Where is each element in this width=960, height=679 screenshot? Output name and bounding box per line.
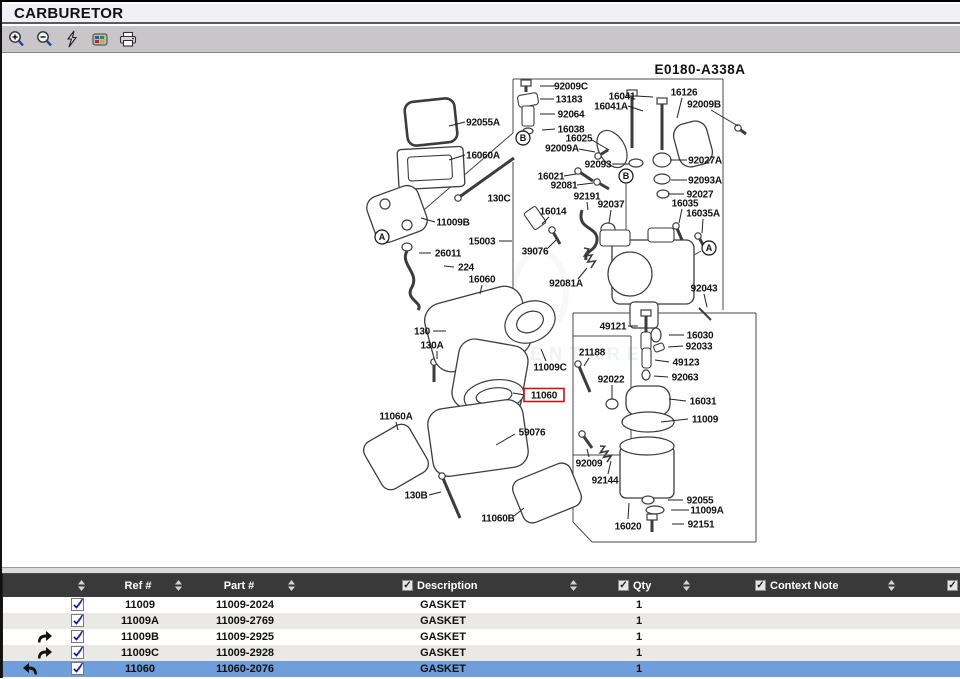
table-row-11060[interactable]: 1106011060-2076GASKET1: [3, 661, 960, 677]
cell-note: [749, 662, 849, 676]
part-label-15003[interactable]: 15003: [469, 237, 496, 248]
part-bolt-head: [657, 98, 667, 104]
zoom-in-button[interactable]: [5, 28, 27, 50]
label-leader-line: [679, 209, 682, 223]
column-checkbox-qty[interactable]: ✓: [618, 580, 629, 591]
part-label-16126[interactable]: 16126: [671, 88, 698, 99]
part-label-11009B[interactable]: 11009B: [436, 218, 469, 229]
label-leader-line: [668, 346, 683, 347]
cell-desc: GASKET: [393, 646, 493, 660]
sort-arrows-ref[interactable]: [174, 579, 183, 597]
part-label-130C[interactable]: 130C: [487, 194, 510, 205]
part-shape: [641, 332, 651, 350]
part-label-92093A[interactable]: 92093A: [688, 176, 722, 187]
column-checkbox-description[interactable]: ✓: [402, 580, 413, 591]
part-label-49123[interactable]: 49123: [673, 358, 700, 369]
label-leader-line: [711, 110, 738, 126]
cell-note: [749, 614, 849, 628]
part-label-92063[interactable]: 92063: [672, 373, 699, 384]
label-leader-line: [654, 376, 668, 377]
cell-part: 11009-2925: [190, 630, 300, 644]
print-icon: [119, 31, 138, 48]
part-label-11009C[interactable]: 11009C: [533, 363, 566, 374]
part-screw: [578, 364, 590, 392]
label-leader-line: [704, 294, 707, 307]
part-screw: [442, 476, 460, 518]
label-leader-line: [548, 240, 556, 248]
table-row-11009C[interactable]: 11009C11009-2928GASKET1: [3, 645, 960, 661]
part-label-130[interactable]: 130: [414, 327, 431, 338]
return-arrow-icon[interactable]: [21, 661, 39, 679]
cell-part: 11009-2769: [190, 614, 300, 628]
part-label-26011[interactable]: 26011: [435, 249, 462, 260]
part-shape: [642, 496, 654, 504]
table-row-11009A[interactable]: 11009A11009-2769GASKET1: [3, 613, 960, 629]
table-row-11009[interactable]: 1100911009-2024GASKET1: [3, 597, 960, 613]
label-leader-line: [579, 149, 595, 152]
part-shape: [620, 437, 674, 455]
part-label-11009A[interactable]: 11009A: [690, 506, 723, 517]
part-label-49121[interactable]: 49121: [600, 322, 627, 333]
label-leader-line: [429, 492, 441, 495]
callout-letter-B: B: [623, 171, 630, 181]
label-leader-line: [564, 174, 576, 176]
part-shape: [363, 182, 430, 246]
part-label-11060[interactable]: 11060: [531, 391, 558, 402]
part-bolt-head: [521, 80, 531, 86]
part-shape: [657, 190, 669, 198]
label-leader-line: [444, 266, 454, 267]
part-bolt-head: [641, 310, 651, 316]
part-label-92009B[interactable]: 92009B: [687, 100, 721, 111]
label-leader-line: [587, 202, 588, 210]
part-screw-head: [549, 227, 555, 233]
sort-arrows-select-column[interactable]: [77, 579, 86, 597]
cell-ref: 11009A: [100, 614, 180, 628]
part-label-92022[interactable]: 92022: [598, 375, 625, 386]
label-leader-line: [578, 268, 587, 279]
part-shape: [522, 106, 534, 126]
part-label-13183[interactable]: 13183: [556, 95, 583, 106]
sort-arrows-part[interactable]: [287, 579, 296, 597]
part-label-92081[interactable]: 92081: [551, 181, 578, 192]
part-shape: [608, 252, 652, 296]
hotspot-parts-icon: [91, 30, 109, 48]
label-leader-line: [677, 98, 682, 118]
sort-arrows-context-note[interactable]: [887, 579, 896, 597]
cell-qty: 1: [624, 646, 654, 660]
cell-part: 11060-2076: [190, 662, 300, 676]
part-hose: [581, 210, 597, 260]
part-shape: [517, 92, 539, 107]
label-leader-line: [609, 210, 611, 223]
label-leader-line: [655, 360, 669, 362]
cell-ref: 11060: [100, 662, 180, 676]
window-left-border: [0, 2, 2, 678]
diagram-code: E0180-A338A: [654, 62, 745, 77]
part-shape: [651, 328, 661, 342]
part-label-130B[interactable]: 130B: [404, 491, 427, 502]
cell-qty: 1: [624, 598, 654, 612]
part-shape: [600, 230, 630, 246]
cell-ref: 11009: [100, 598, 180, 612]
column-checkbox-extra[interactable]: ✓: [947, 580, 958, 591]
part-label-92151[interactable]: 92151: [688, 520, 715, 531]
part-screw-head: [594, 179, 600, 185]
part-shape: [653, 153, 671, 167]
part-screw-head: [673, 223, 679, 229]
cell-part: 11009-2928: [190, 646, 300, 660]
part-label-11060A[interactable]: 11060A: [379, 412, 412, 423]
diagram-area: LEADVENTURE92055A16060A130C11009B1500326…: [0, 54, 960, 567]
part-label-224[interactable]: 224: [458, 263, 475, 274]
cell-part: 11009-2024: [190, 598, 300, 612]
column-header-ref-[interactable]: Ref #: [113, 574, 163, 597]
part-label-92009[interactable]: 92009: [576, 459, 603, 470]
part-shape: [404, 98, 458, 147]
part-label-16014[interactable]: 16014: [540, 207, 567, 218]
zoom-in-icon: [7, 30, 25, 48]
part-label-16060[interactable]: 16060: [469, 275, 496, 286]
part-label-92064[interactable]: 92064: [558, 110, 585, 121]
page-title: CARBURETOR: [14, 5, 123, 22]
part-shape: [646, 506, 664, 514]
part-screw: [458, 158, 514, 198]
part-shape: [402, 220, 412, 230]
part-screw-head: [439, 473, 445, 479]
label-leader-line: [636, 96, 653, 97]
cell-desc: GASKET: [393, 598, 493, 612]
carburetor-diagram-svg: LEADVENTURE92055A16060A130C11009B1500326…: [0, 54, 960, 567]
part-label-92055A[interactable]: 92055A: [466, 118, 500, 129]
label-leader-line: [702, 219, 703, 233]
part-label-92081A[interactable]: 92081A: [549, 279, 583, 290]
parts-table-body: 1100911009-2024GASKET111009A11009-2769GA…: [0, 597, 960, 678]
label-leader-line: [608, 461, 611, 474]
select-part-checkbox-icon[interactable]: [70, 661, 85, 679]
cell-qty: 1: [624, 614, 654, 628]
part-label-92037[interactable]: 92037: [598, 200, 625, 211]
zoom-out-icon: [35, 30, 53, 48]
part-label-130A[interactable]: 130A: [420, 341, 443, 352]
part-screw-head: [455, 195, 461, 201]
part-shape: [402, 243, 412, 251]
part-label-92033[interactable]: 92033: [686, 342, 713, 353]
part-hose: [405, 249, 419, 310]
cell-note: [749, 598, 849, 612]
part-label-39076[interactable]: 39076: [522, 247, 549, 258]
sort-arrows-description[interactable]: [569, 579, 578, 597]
print-button[interactable]: [117, 28, 139, 50]
part-label-59076[interactable]: 59076: [519, 428, 546, 439]
part-label-92009A[interactable]: 92009A: [545, 144, 579, 155]
part-shape: [397, 146, 465, 189]
callout-letter-B: B: [520, 133, 527, 143]
part-screw-head: [575, 361, 581, 367]
part-shape: [622, 412, 674, 432]
part-shape: [653, 343, 665, 353]
part-screw-head: [595, 153, 601, 159]
label-leader-line: [628, 503, 629, 519]
part-shape: [360, 421, 432, 494]
parts-table-header: Ref #Part #✓Description✓Qty✓Context Note…: [0, 574, 960, 597]
part-label-16035A[interactable]: 16035A: [686, 209, 720, 220]
window-titlebar: CARBURETOR: [0, 4, 960, 24]
cell-ref: 11009C: [100, 646, 180, 660]
label-leader-line: [669, 399, 686, 401]
column-header-context-note[interactable]: Context Note: [770, 574, 838, 597]
part-bolt-head: [647, 514, 657, 520]
column-header-qty[interactable]: Qty: [633, 574, 651, 597]
cell-qty: 1: [624, 662, 654, 676]
toolbar: [0, 26, 960, 53]
table-row-11009B[interactable]: 11009B11009-2925GASKET1: [3, 629, 960, 645]
column-checkbox-context-note[interactable]: ✓: [755, 580, 766, 591]
label-leader-line: [577, 183, 593, 185]
part-shape: [629, 159, 643, 167]
hotspot-parts-button[interactable]: [89, 28, 111, 50]
label-leader-line: [587, 449, 589, 457]
part-shape: [642, 370, 650, 380]
sort-arrows-qty[interactable]: [682, 579, 691, 597]
table-top-strip: [0, 567, 960, 574]
part-screw-head: [695, 233, 701, 239]
zoom-out-button[interactable]: [33, 28, 55, 50]
callout-letter-A: A: [379, 232, 386, 242]
part-label-16060A[interactable]: 16060A: [466, 151, 500, 162]
part-shape: [654, 174, 670, 184]
part-shape: [380, 199, 390, 209]
cell-desc: GASKET: [393, 630, 493, 644]
column-header-part-[interactable]: Part #: [214, 574, 264, 597]
part-shape: [426, 398, 531, 479]
part-label-92093[interactable]: 92093: [585, 160, 612, 171]
flash-icon: [64, 30, 80, 48]
part-label-21188[interactable]: 21188: [579, 348, 606, 359]
part-label-16020[interactable]: 16020: [615, 522, 642, 533]
part-shape: [648, 228, 674, 242]
part-label-11009[interactable]: 11009: [692, 415, 719, 426]
part-label-16030[interactable]: 16030: [687, 331, 714, 342]
part-label-92027A[interactable]: 92027A: [688, 156, 722, 167]
flash-button[interactable]: [61, 28, 83, 50]
part-shape: [606, 399, 618, 409]
part-shape: [699, 308, 711, 320]
label-leader-line: [542, 129, 555, 130]
part-label-11060B[interactable]: 11060B: [481, 514, 514, 525]
column-header-description[interactable]: Description: [417, 574, 478, 597]
part-label-92043[interactable]: 92043: [691, 284, 718, 295]
part-screw-head: [575, 168, 581, 174]
cell-note: [749, 630, 849, 644]
cell-ref: 11009B: [100, 630, 180, 644]
part-screw-head: [579, 431, 585, 437]
cell-desc: GASKET: [393, 662, 493, 676]
part-label-16031[interactable]: 16031: [690, 397, 717, 408]
part-label-92144[interactable]: 92144: [592, 476, 619, 487]
diagram-outline: [573, 522, 592, 542]
callout-letter-A: A: [706, 243, 713, 253]
part-label-92009C[interactable]: 92009C: [554, 82, 588, 93]
label-leader-line: [628, 106, 643, 111]
cell-desc: GASKET: [393, 614, 493, 628]
part-label-16041A[interactable]: 16041A: [594, 102, 628, 113]
cell-qty: 1: [624, 630, 654, 644]
part-shape: [642, 348, 651, 368]
cell-note: [749, 646, 849, 660]
